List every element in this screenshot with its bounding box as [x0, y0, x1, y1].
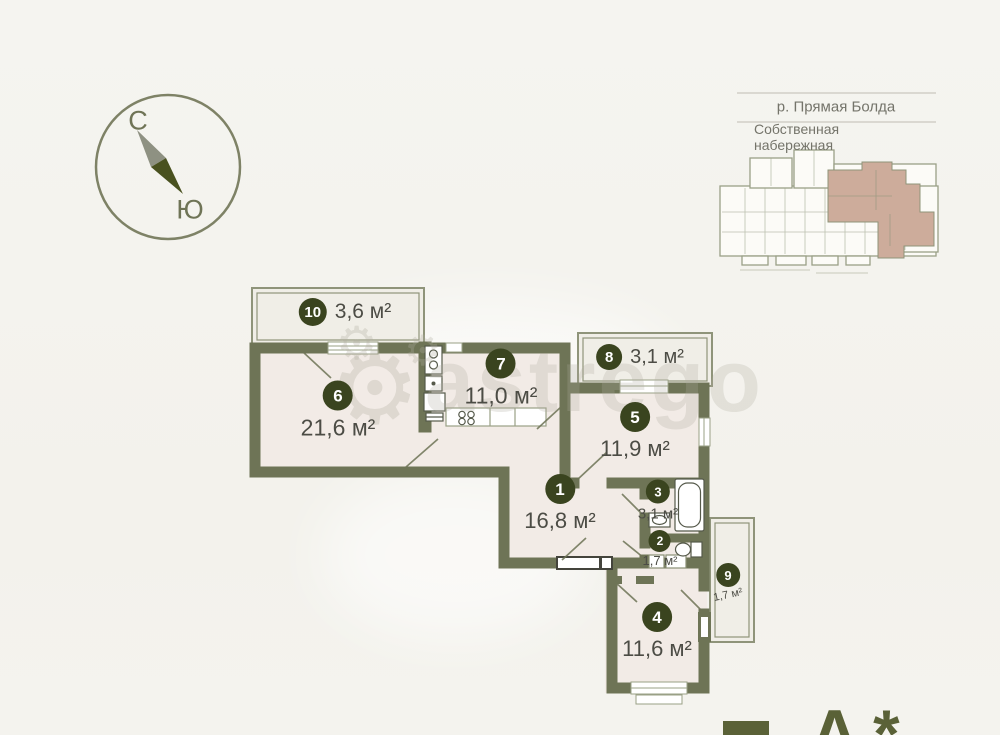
compass-south-label: Ю [176, 195, 203, 226]
embankment-label: Собственная набережная [754, 121, 918, 153]
room-label-10: 10 3,6 м² [299, 298, 391, 326]
room-area: 11,9 м² [600, 436, 670, 462]
room-area: 11,6 м² [622, 636, 692, 662]
room-area: 16,8 м² [524, 508, 595, 534]
toilet [691, 542, 702, 557]
room-label-2: 2 1,7 м² [643, 530, 678, 568]
floor-plan-page: ⚙ ⚙ ⚙ astrego С Ю р. Прямая Болда Собств… [0, 0, 1000, 735]
room-area: 1,7 м² [643, 553, 678, 568]
room-area: 3,1 м² [638, 506, 678, 523]
apartment-type-label: А* [810, 700, 914, 735]
room-label-6: 6 21,6 м² [301, 381, 376, 442]
room-area: 3,6 м² [335, 300, 391, 324]
room-number-badge: 1 [545, 474, 575, 504]
room-label-4: 4 11,6 м² [622, 602, 692, 662]
room-label-1: 1 16,8 м² [524, 474, 595, 534]
room-number-badge: 10 [299, 298, 327, 326]
room-number-badge: 4 [642, 602, 672, 632]
room-number-badge: 6 [323, 381, 353, 411]
room-number-badge: 7 [486, 349, 516, 379]
mini-site-plan [720, 93, 938, 273]
room-label-7: 7 11,0 м² [465, 349, 538, 410]
room-number-badge: 2 [649, 530, 671, 552]
room-number-badge: 8 [596, 344, 622, 370]
river-label: р. Прямая Болда [777, 99, 895, 116]
compass-dial [96, 95, 240, 239]
room-area: 21,6 м² [301, 415, 376, 442]
room-label-5: 5 11,9 м² [600, 402, 670, 462]
room-label-9: 9 1,7 м² [713, 563, 743, 601]
room-area: 3,1 м² [630, 346, 684, 369]
room-number-badge: 5 [620, 402, 650, 432]
room-label-8: 8 3,1 м² [596, 344, 684, 370]
compass-north-label: С [128, 106, 148, 137]
room-area: 11,0 м² [465, 383, 538, 410]
room-number-badge: 9 [716, 563, 740, 587]
room-number-badge: 3 [646, 480, 670, 504]
apartment-type-label-fragment [723, 721, 769, 735]
room-label-3: 3 3,1 м² [638, 480, 678, 523]
bathtub [675, 479, 704, 531]
